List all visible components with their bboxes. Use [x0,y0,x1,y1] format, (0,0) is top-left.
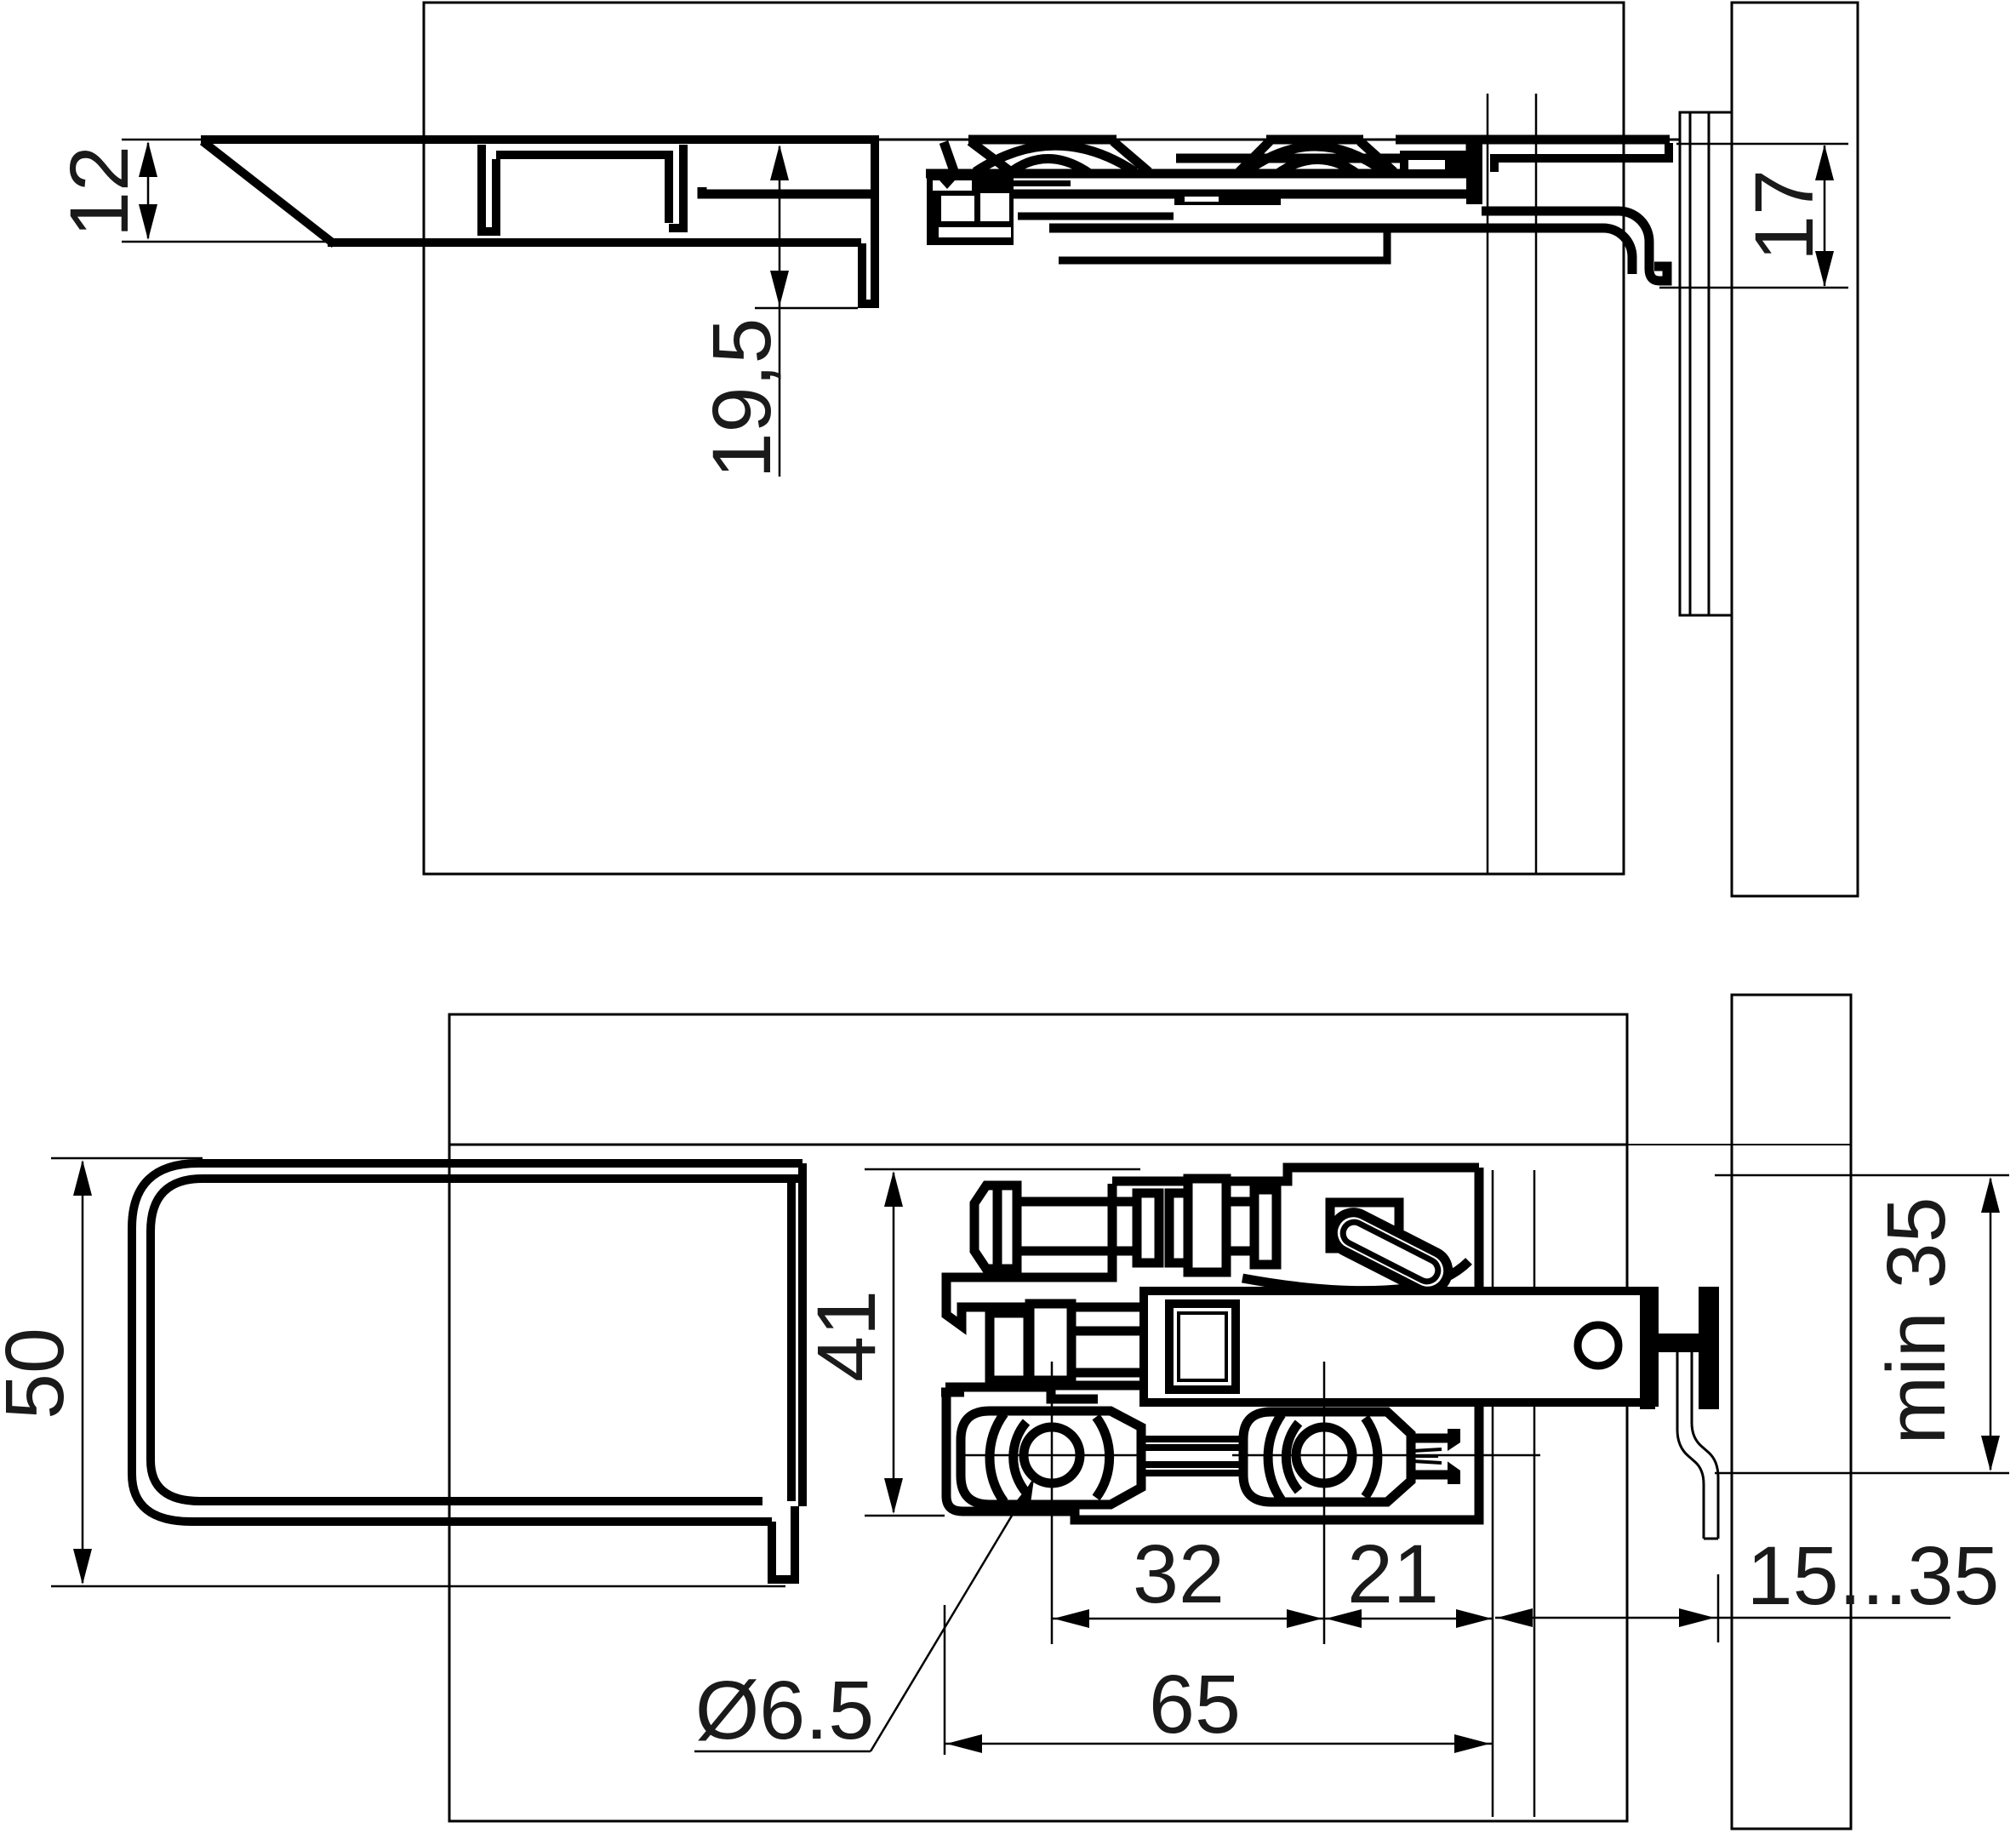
svg-text:17: 17 [1738,169,1830,261]
svg-text:min 35: min 35 [1870,1196,1962,1444]
svg-text:32: 32 [1133,1528,1225,1620]
svg-text:50: 50 [0,1328,81,1419]
svg-text:12: 12 [53,146,146,237]
svg-text:41: 41 [800,1290,893,1382]
svg-text:15...35: 15...35 [1747,1529,2000,1622]
svg-text:21: 21 [1347,1528,1439,1620]
svg-text:19,5: 19,5 [695,318,788,479]
svg-text:Ø6.5: Ø6.5 [695,1664,874,1756]
svg-text:65: 65 [1149,1658,1241,1750]
